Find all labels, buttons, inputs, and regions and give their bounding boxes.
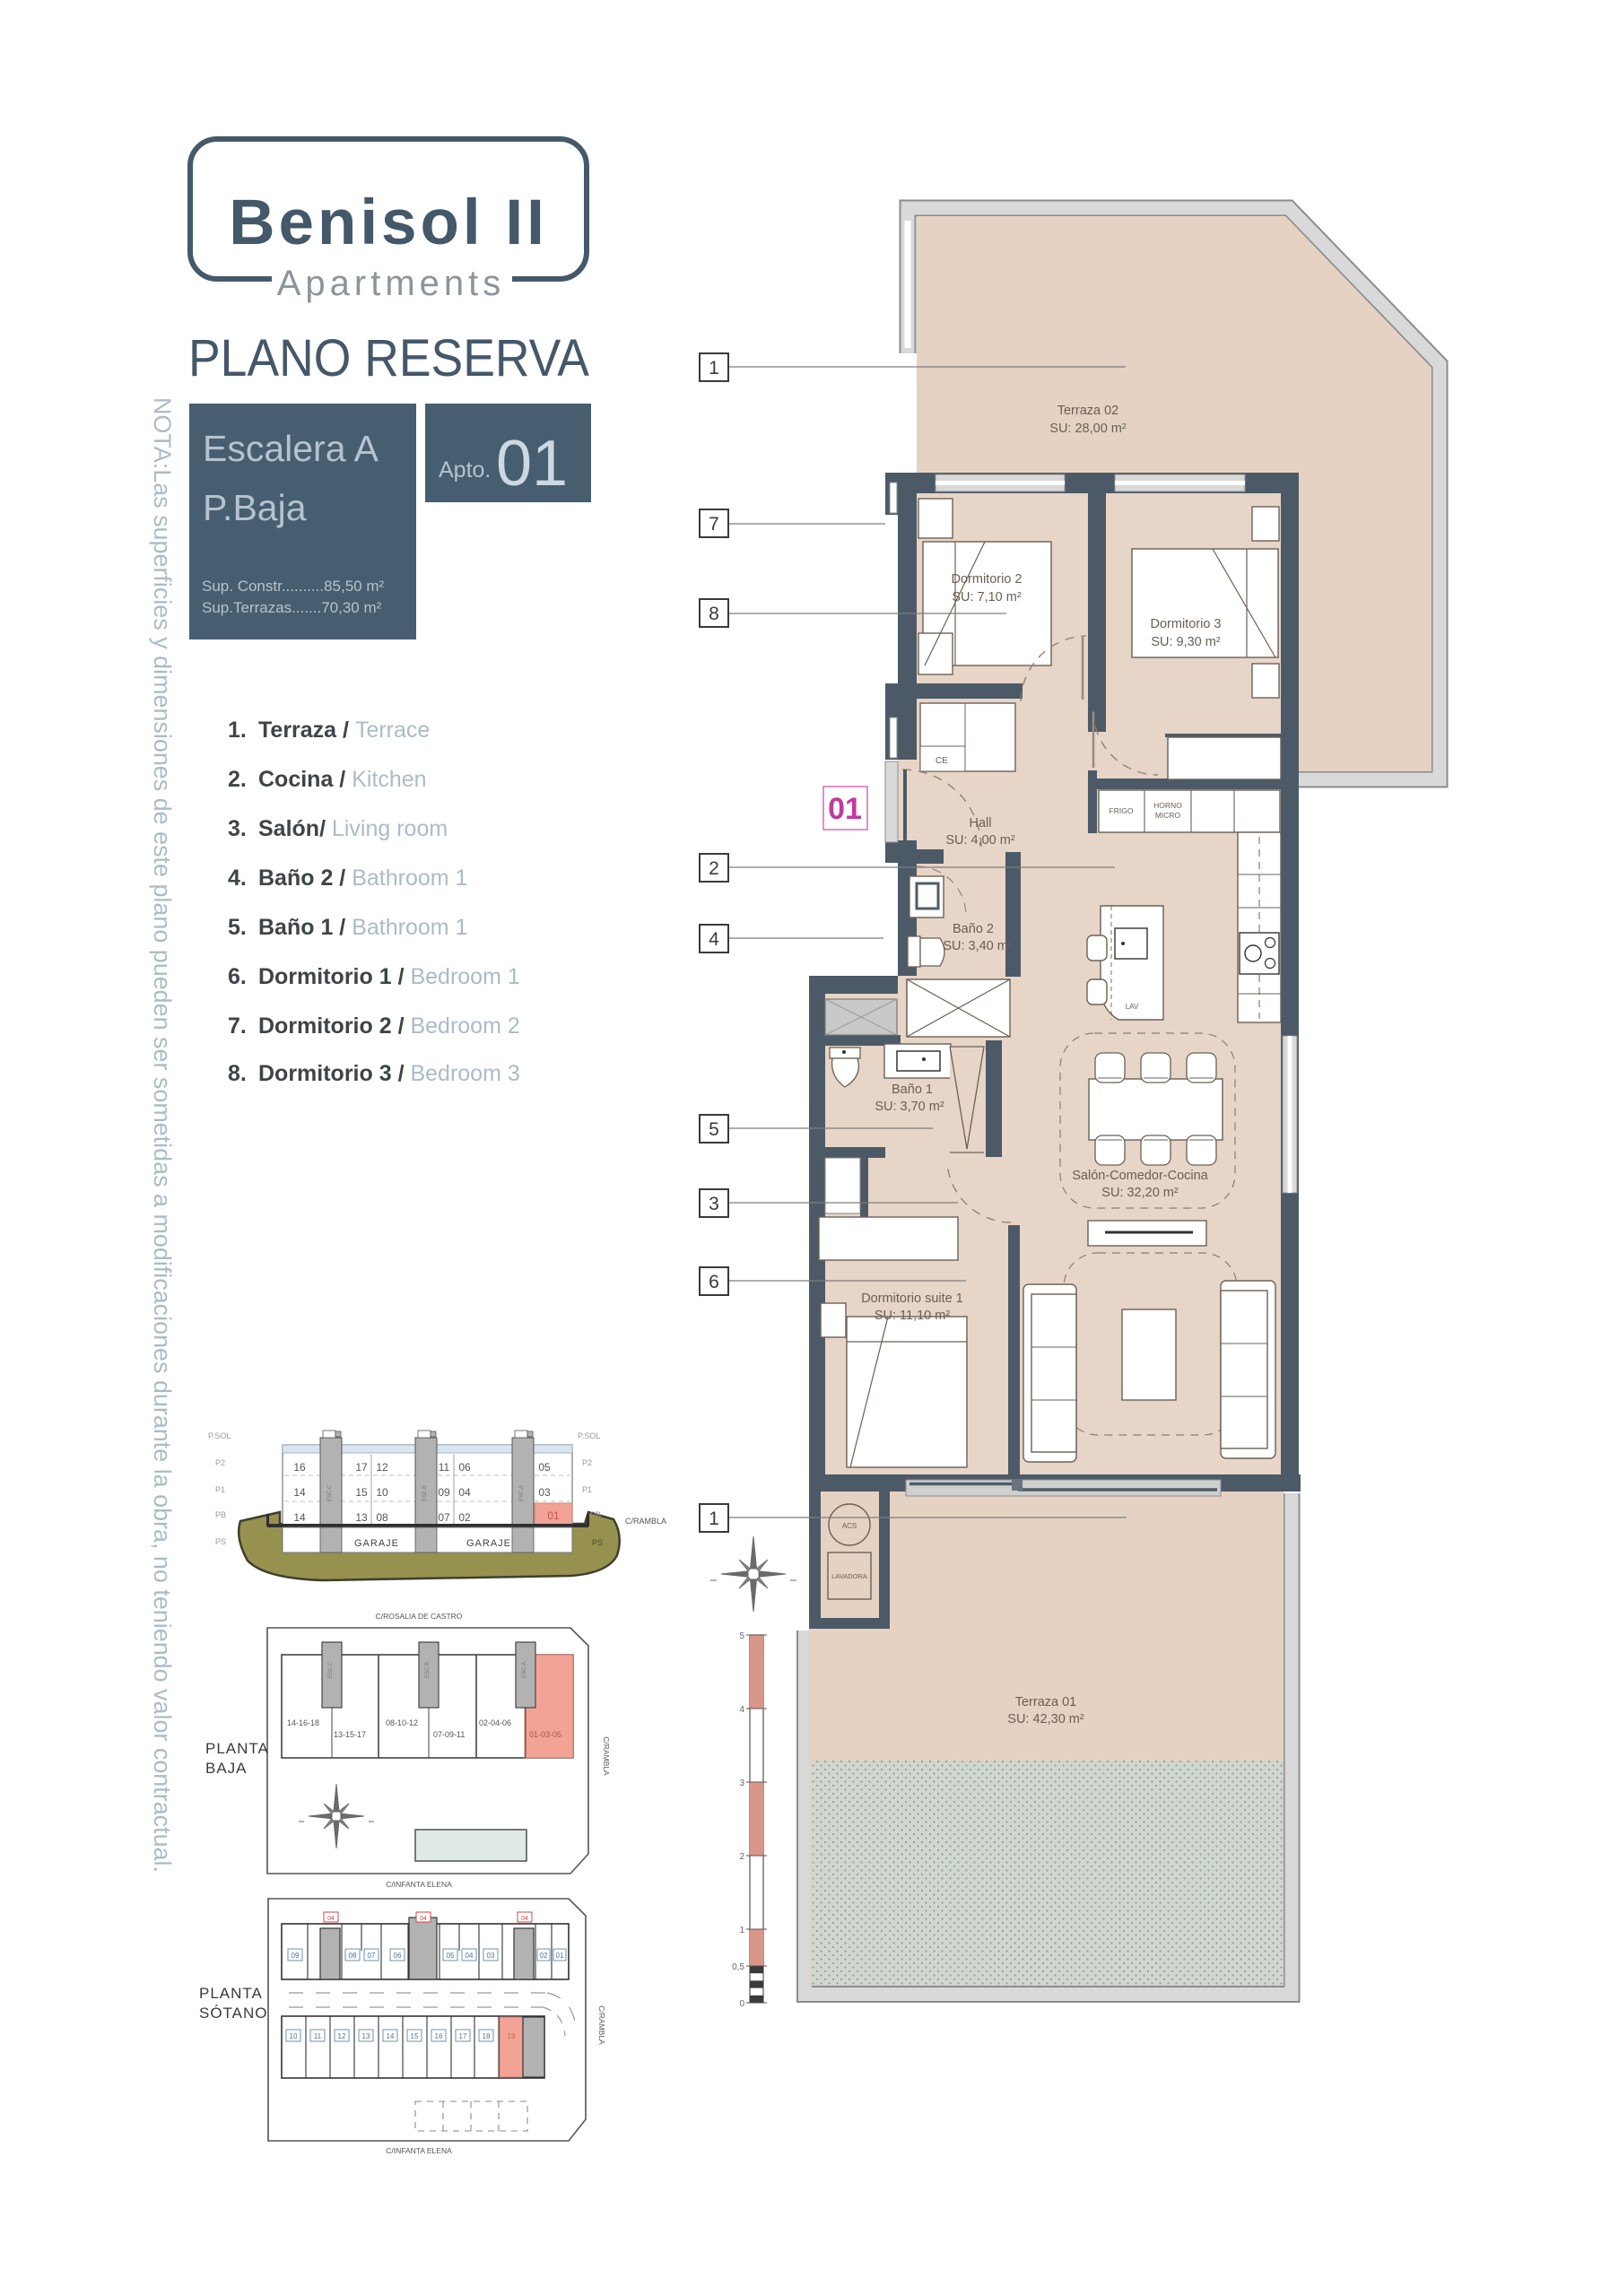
svg-text:07-09-11: 07-09-11 [433, 1730, 465, 1739]
svg-text:01-03-05: 01-03-05 [529, 1730, 561, 1739]
svg-text:SÓTANO: SÓTANO [199, 2005, 268, 2022]
svg-text:P.SOL: P.SOL [208, 1431, 231, 1440]
svg-text:10: 10 [376, 1486, 388, 1499]
svg-text:11: 11 [314, 2032, 322, 2040]
svg-text:5.Baño 1 / Bathroom 1: 5.Baño 1 / Bathroom 1 [228, 915, 467, 940]
svg-text:Dormitorio 3: Dormitorio 3 [1151, 617, 1222, 631]
svg-text:C/INFANTA ELENA: C/INFANTA ELENA [386, 2146, 452, 2155]
svg-text:P.Baja: P.Baja [203, 487, 307, 528]
svg-text:ESC.C: ESC.C [327, 1484, 333, 1501]
svg-text:PLANTA: PLANTA [199, 1985, 263, 2002]
svg-text:05: 05 [447, 1952, 455, 1960]
svg-text:P1: P1 [215, 1485, 225, 1494]
svg-text:8: 8 [709, 604, 719, 624]
svg-text:15: 15 [411, 2032, 419, 2040]
svg-text:ESC.B: ESC.B [425, 1662, 431, 1678]
svg-text:C/INFANTA ELENA: C/INFANTA ELENA [386, 1880, 452, 1889]
svg-text:15: 15 [355, 1486, 368, 1499]
svg-text:14-16-18: 14-16-18 [287, 1718, 319, 1727]
svg-text:C/RAMBLA: C/RAMBLA [602, 1736, 611, 1776]
svg-text:SU: 11,10 m²: SU: 11,10 m² [875, 1309, 951, 1323]
svg-text:ACS: ACS [842, 1522, 857, 1530]
svg-text:SU: 9,30 m²: SU: 9,30 m² [1151, 635, 1221, 649]
svg-text:09: 09 [438, 1486, 450, 1499]
svg-text:Dormitorio suite 1: Dormitorio suite 1 [861, 1291, 963, 1306]
svg-text:2.Cocina / Kitchen: 2.Cocina / Kitchen [228, 767, 427, 792]
svg-text:2: 2 [709, 858, 719, 879]
svg-text:SU: 7,10 m²: SU: 7,10 m² [952, 590, 1022, 604]
svg-text:0,5: 0,5 [732, 1962, 744, 1972]
svg-text:09: 09 [292, 1952, 300, 1960]
svg-text:04: 04 [458, 1486, 471, 1499]
svg-text:04: 04 [420, 1916, 427, 1922]
svg-text:BAJA: BAJA [205, 1760, 248, 1777]
svg-text:19: 19 [508, 2032, 516, 2040]
svg-text:06: 06 [458, 1461, 471, 1474]
svg-text:03: 03 [487, 1952, 495, 1960]
svg-text:01: 01 [547, 1509, 560, 1522]
svg-text:01: 01 [828, 792, 862, 826]
svg-text:Benisol II: Benisol II [229, 187, 548, 258]
svg-text:1: 1 [709, 1509, 719, 1529]
svg-text:06: 06 [394, 1952, 402, 1960]
svg-text:Terraza 01: Terraza 01 [1015, 1695, 1077, 1709]
svg-text:MICRO: MICRO [1155, 811, 1181, 820]
svg-text:P1: P1 [582, 1485, 592, 1494]
svg-text:ESC.B: ESC.B [422, 1485, 428, 1501]
svg-text:C/RAMBLA: C/RAMBLA [625, 1517, 666, 1526]
svg-text:17: 17 [355, 1461, 368, 1474]
svg-text:2: 2 [739, 1852, 744, 1862]
svg-text:P2: P2 [215, 1458, 225, 1467]
svg-text:C/RAMBLA: C/RAMBLA [597, 2005, 606, 2045]
svg-text:ESC.A: ESC.A [522, 1662, 527, 1678]
svg-text:08-10-12: 08-10-12 [386, 1718, 418, 1727]
svg-text:16: 16 [435, 2032, 443, 2040]
svg-text:3.Salón/ Living room: 3.Salón/ Living room [228, 816, 448, 841]
svg-text:14: 14 [293, 1511, 306, 1524]
svg-text:Sup. Constr..........85,50 m²: Sup. Constr..........85,50 m² [202, 578, 384, 595]
svg-text:Baño 2: Baño 2 [953, 922, 994, 936]
svg-text:SU: 32,20 m²: SU: 32,20 m² [1101, 1186, 1179, 1200]
svg-text:01: 01 [496, 428, 568, 500]
svg-text:13: 13 [362, 2032, 370, 2040]
svg-text:12: 12 [376, 1461, 388, 1474]
svg-text:14: 14 [293, 1486, 306, 1499]
svg-text:13: 13 [355, 1511, 368, 1524]
svg-text:3: 3 [709, 1194, 719, 1214]
svg-text:05: 05 [538, 1461, 551, 1474]
svg-text:CE: CE [936, 756, 948, 766]
svg-text:04: 04 [521, 1916, 528, 1922]
svg-text:13-15-17: 13-15-17 [334, 1730, 366, 1739]
svg-text:SU: 3,40 m²: SU: 3,40 m² [943, 939, 1013, 953]
svg-text:SU: 3,70 m²: SU: 3,70 m² [875, 1100, 944, 1114]
svg-text:4: 4 [709, 929, 719, 950]
svg-text:3: 3 [739, 1779, 744, 1788]
svg-text:14: 14 [387, 2032, 395, 2040]
svg-text:PS: PS [592, 1538, 603, 1547]
svg-text:4.Baño 2 / Bathroom 1: 4.Baño 2 / Bathroom 1 [228, 865, 467, 891]
svg-text:04: 04 [327, 1916, 335, 1922]
svg-text:8.Dormitorio 3 / Bedroom 3: 8.Dormitorio 3 / Bedroom 3 [228, 1061, 520, 1086]
svg-text:08: 08 [349, 1952, 357, 1960]
svg-text:PS: PS [215, 1537, 226, 1546]
svg-text:PB: PB [590, 1510, 601, 1519]
svg-text:Baño 1: Baño 1 [892, 1083, 933, 1097]
svg-text:16: 16 [293, 1461, 306, 1474]
svg-text:LAV: LAV [1126, 1003, 1139, 1011]
svg-text:01: 01 [556, 1952, 564, 1960]
svg-text:SU: 28,00 m²: SU: 28,00 m² [1049, 422, 1127, 436]
svg-text:6: 6 [709, 1272, 719, 1292]
svg-text:Salón-Comedor-Cocina: Salón-Comedor-Cocina [1072, 1169, 1208, 1183]
svg-text:18: 18 [483, 2032, 491, 2040]
svg-text:02: 02 [540, 1952, 548, 1960]
svg-text:04: 04 [466, 1952, 474, 1960]
svg-text:5: 5 [709, 1119, 719, 1140]
svg-text:PLANTA: PLANTA [205, 1740, 269, 1757]
svg-text:0: 0 [739, 1999, 744, 2009]
svg-text:P2: P2 [582, 1458, 592, 1467]
svg-text:Terraza 02: Terraza 02 [1057, 404, 1119, 418]
svg-text:4: 4 [739, 1705, 744, 1715]
svg-text:PB: PB [215, 1510, 226, 1519]
svg-text:HORNO: HORNO [1153, 801, 1182, 810]
svg-text:GARAJE: GARAJE [354, 1538, 399, 1549]
svg-text:Hall: Hall [970, 816, 992, 831]
svg-text:1: 1 [739, 1926, 744, 1935]
svg-text:07: 07 [368, 1952, 376, 1960]
svg-text:Sup.Terrazas.......70,30 m²: Sup.Terrazas.......70,30 m² [202, 599, 382, 616]
svg-text:07: 07 [438, 1511, 450, 1524]
svg-text:SU: 4,00 m²: SU: 4,00 m² [945, 833, 1015, 848]
svg-text:02-04-06: 02-04-06 [479, 1718, 511, 1727]
svg-text:C/ROSALIA DE CASTRO: C/ROSALIA DE CASTRO [376, 1612, 463, 1621]
svg-text:ESC.C: ESC.C [328, 1661, 334, 1678]
svg-text:P.SOL: P.SOL [578, 1431, 600, 1440]
svg-text:NOTA:Las superficies y dimensi: NOTA:Las superficies y dimensiones de es… [149, 397, 176, 1873]
svg-text:7: 7 [709, 514, 719, 535]
svg-text:11: 11 [439, 1461, 450, 1474]
svg-text:SU: 42,30 m²: SU: 42,30 m² [1007, 1712, 1084, 1726]
svg-text:03: 03 [538, 1486, 551, 1499]
svg-text:10: 10 [290, 2032, 298, 2040]
svg-text:Apto.: Apto. [439, 457, 491, 483]
svg-text:7.Dormitorio 2 / Bedroom 2: 7.Dormitorio 2 / Bedroom 2 [228, 1013, 520, 1039]
svg-text:08: 08 [376, 1511, 388, 1524]
svg-text:1.Terraza / Terrace: 1.Terraza / Terrace [228, 717, 430, 743]
svg-text:LAVADORA: LAVADORA [831, 1572, 867, 1580]
svg-text:Escalera A: Escalera A [203, 428, 379, 469]
svg-text:17: 17 [459, 2032, 467, 2040]
svg-text:GARAJE: GARAJE [466, 1538, 511, 1549]
svg-text:FRIGO: FRIGO [1110, 806, 1134, 815]
svg-text:PLANO RESERVA: PLANO RESERVA [188, 329, 589, 387]
svg-text:12: 12 [338, 2032, 346, 2040]
svg-text:6.Dormitorio 1 / Bedroom 1: 6.Dormitorio 1 / Bedroom 1 [228, 964, 520, 989]
svg-text:Apartments: Apartments [277, 264, 506, 303]
svg-text:ESC.A: ESC.A [519, 1485, 525, 1501]
svg-text:1: 1 [709, 358, 719, 378]
svg-text:Dormitorio 2: Dormitorio 2 [952, 572, 1023, 587]
svg-text:02: 02 [458, 1511, 471, 1524]
svg-text:5: 5 [739, 1631, 744, 1641]
